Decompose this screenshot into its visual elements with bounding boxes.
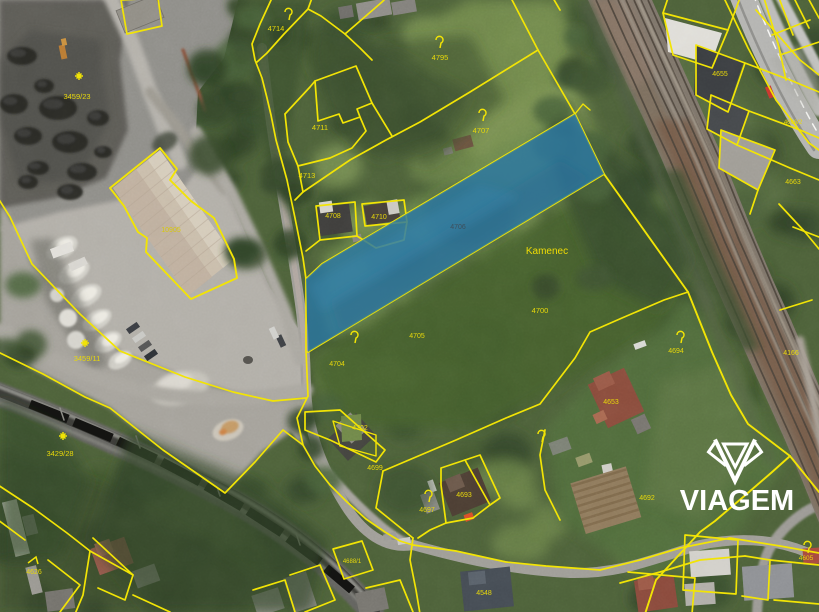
svg-text:4697: 4697 [419, 507, 435, 514]
svg-text:4548: 4548 [476, 590, 492, 597]
svg-text:10905: 10905 [161, 227, 181, 234]
svg-text:Kamenec: Kamenec [526, 246, 568, 257]
svg-text:4710: 4710 [371, 214, 387, 221]
svg-text:4663: 4663 [785, 179, 801, 186]
svg-text:3459/11: 3459/11 [74, 354, 101, 363]
svg-text:4693: 4693 [456, 492, 472, 499]
svg-text:4655: 4655 [712, 71, 728, 78]
svg-text:4688/1: 4688/1 [343, 559, 362, 565]
svg-text:4605: 4605 [799, 555, 814, 562]
svg-text:4626: 4626 [26, 569, 42, 576]
svg-text:4795: 4795 [432, 53, 449, 62]
svg-text:4708: 4708 [325, 213, 341, 220]
svg-text:3459/23: 3459/23 [63, 92, 90, 101]
svg-text:4714: 4714 [268, 24, 285, 33]
svg-text:4705: 4705 [409, 333, 425, 340]
svg-text:4666/2: 4666/2 [784, 120, 803, 126]
svg-text:4711: 4711 [312, 123, 328, 132]
svg-text:4704: 4704 [329, 361, 345, 368]
svg-text:4706: 4706 [450, 224, 466, 231]
svg-text:4699: 4699 [367, 465, 383, 472]
svg-text:4166: 4166 [783, 350, 799, 357]
svg-text:4707: 4707 [473, 126, 490, 135]
svg-text:4653: 4653 [603, 399, 619, 406]
svg-text:3429/28: 3429/28 [46, 449, 73, 458]
svg-text:4702: 4702 [352, 425, 368, 432]
svg-text:VIAGEM: VIAGEM [680, 485, 794, 517]
svg-text:4694: 4694 [668, 348, 684, 355]
svg-text:4692: 4692 [639, 495, 655, 502]
svg-text:4713: 4713 [299, 171, 316, 180]
svg-text:4700: 4700 [532, 306, 549, 315]
